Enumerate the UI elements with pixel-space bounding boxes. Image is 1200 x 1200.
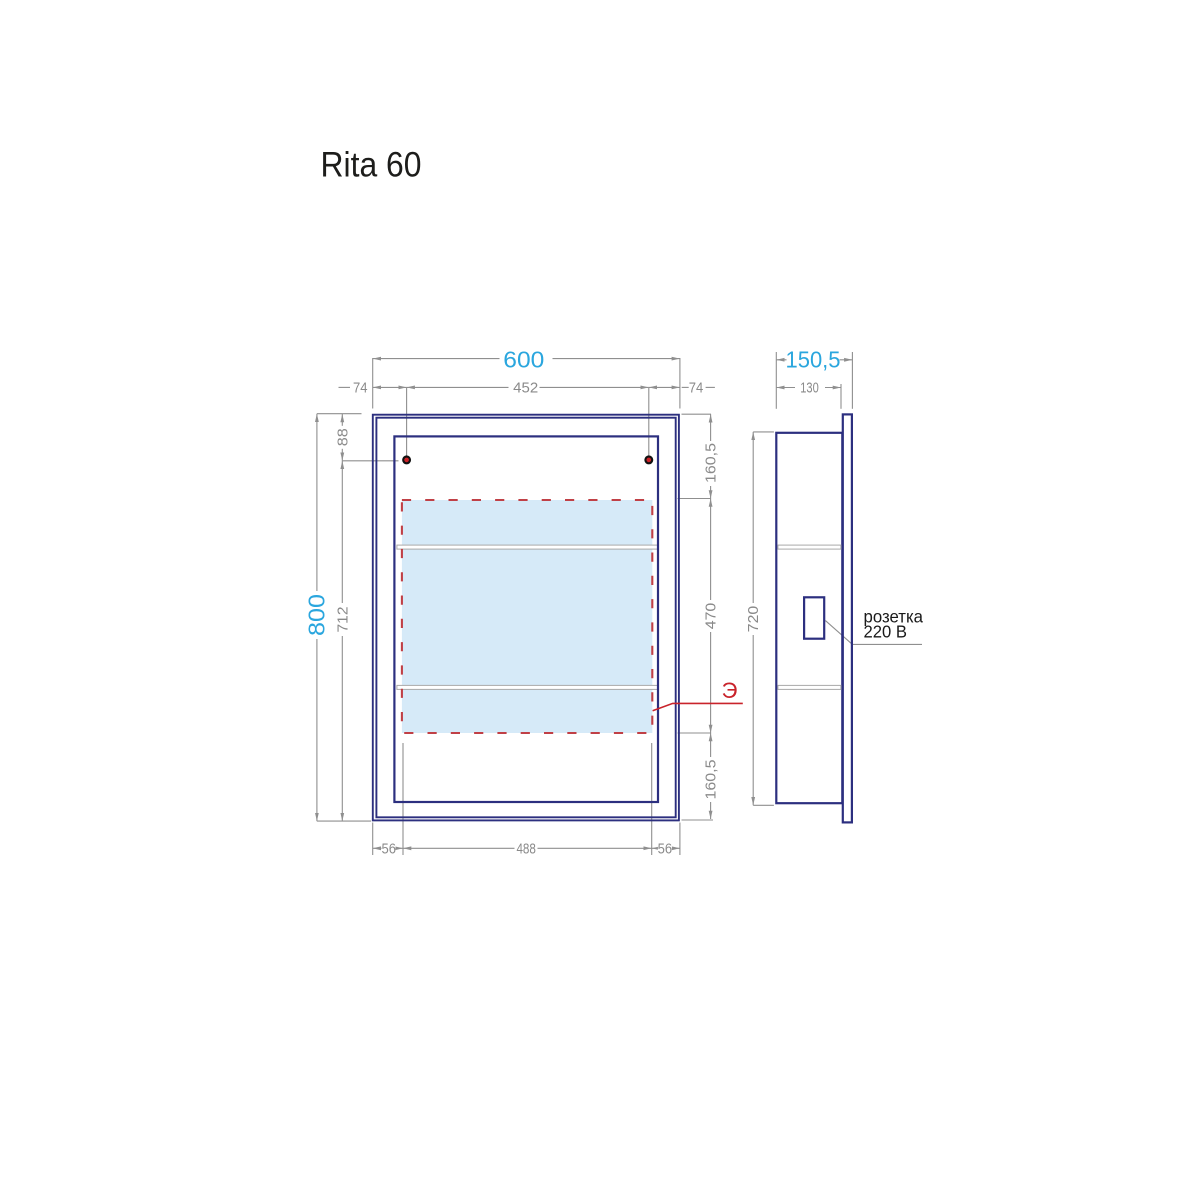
- svg-text:88: 88: [334, 428, 351, 446]
- svg-text:74: 74: [353, 381, 368, 397]
- svg-text:220 В: 220 В: [864, 622, 908, 642]
- svg-text:Rita 60: Rita 60: [321, 145, 422, 185]
- svg-text:74: 74: [689, 381, 704, 397]
- svg-text:712: 712: [334, 607, 351, 633]
- svg-text:160,5: 160,5: [703, 760, 720, 800]
- svg-text:800: 800: [303, 594, 329, 636]
- svg-text:470: 470: [703, 603, 720, 630]
- svg-text:452: 452: [513, 381, 538, 397]
- svg-text:150,5: 150,5: [786, 347, 841, 373]
- svg-text:130: 130: [800, 381, 819, 397]
- svg-text:Э: Э: [722, 678, 738, 703]
- svg-text:488: 488: [516, 842, 536, 858]
- svg-text:720: 720: [745, 606, 762, 633]
- svg-text:56: 56: [382, 842, 397, 858]
- svg-text:600: 600: [503, 347, 544, 373]
- svg-text:160,5: 160,5: [703, 443, 720, 483]
- svg-text:56: 56: [658, 842, 673, 858]
